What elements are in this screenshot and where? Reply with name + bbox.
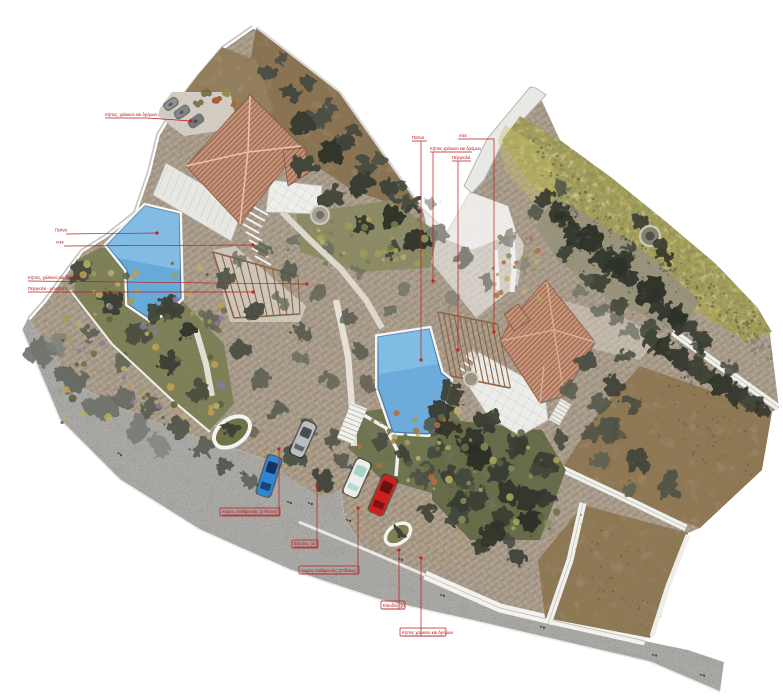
svg-text:Κήπος, χαλικιού και δρόμων: Κήπος, χαλικιού και δρόμων <box>28 275 80 280</box>
svg-text:Κήπος, χαλικιού και δρόμων: Κήπος, χαλικιού και δρόμων <box>105 112 157 117</box>
svg-text:ντεκ: ντεκ <box>459 133 468 138</box>
svg-text:Είσοδος (β): Είσοδος (β) <box>383 603 405 608</box>
svg-text:Είσοδος (α): Είσοδος (α) <box>294 541 316 546</box>
svg-text:Πέργκολα - μονοπάτι: Πέργκολα - μονοπάτι <box>28 286 67 291</box>
svg-text:Κήπος χαλικιού και δρόμων: Κήπος χαλικιού και δρόμων <box>402 630 453 635</box>
svg-text:Πισίνα: Πισίνα <box>55 228 68 233</box>
svg-text:Πέργκολα: Πέργκολα <box>452 155 471 160</box>
svg-text:Χώρος στάθμευσης (2 θέσεις): Χώρος στάθμευσης (2 θέσεις) <box>222 509 278 514</box>
svg-text:Χώρος στάθμευσης (2 θέσεις): Χώρος στάθμευσης (2 θέσεις) <box>301 568 357 573</box>
svg-text:ντεκ: ντεκ <box>56 240 65 245</box>
svg-text:Κήπος χαλικιού και δρόμων: Κήπος χαλικιού και δρόμων <box>430 146 481 151</box>
svg-text:Πισίνα: Πισίνα <box>412 135 425 140</box>
